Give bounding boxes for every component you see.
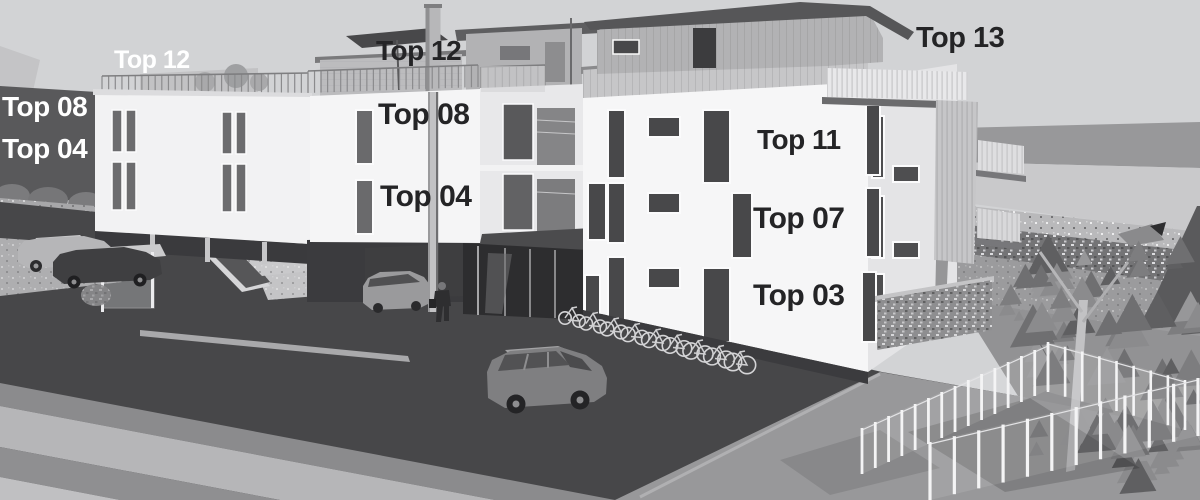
storefront-glass xyxy=(463,243,588,320)
balcony-bay xyxy=(480,66,583,248)
unit-label-top-08-left: Top 08 xyxy=(2,93,87,121)
briefcase xyxy=(429,299,436,308)
penthouse-door xyxy=(693,28,716,68)
round-bush xyxy=(81,284,111,306)
parked-minivan xyxy=(363,271,430,313)
architectural-rendering-scene xyxy=(0,0,1200,500)
rendering-viewport: Top 12 Top 08 Top 04 Top 12 Top 08 Top 0… xyxy=(0,0,1200,500)
unit-label-top-13: Top 13 xyxy=(916,24,1004,53)
unit-label-top-04-left: Top 04 xyxy=(2,135,87,163)
unit-label-top-04-center: Top 04 xyxy=(380,182,471,212)
unit-label-top-12-left: Top 12 xyxy=(114,48,190,73)
unit-label-top-11: Top 11 xyxy=(757,126,841,154)
entrance xyxy=(463,228,598,320)
unit-label-top-07: Top 07 xyxy=(753,204,844,234)
unit-label-top-12-center: Top 12 xyxy=(376,37,461,65)
penthouse-window xyxy=(613,40,639,54)
unit-label-top-08-center: Top 08 xyxy=(378,100,469,130)
left-building xyxy=(93,89,312,264)
unit-label-top-03: Top 03 xyxy=(753,281,844,311)
